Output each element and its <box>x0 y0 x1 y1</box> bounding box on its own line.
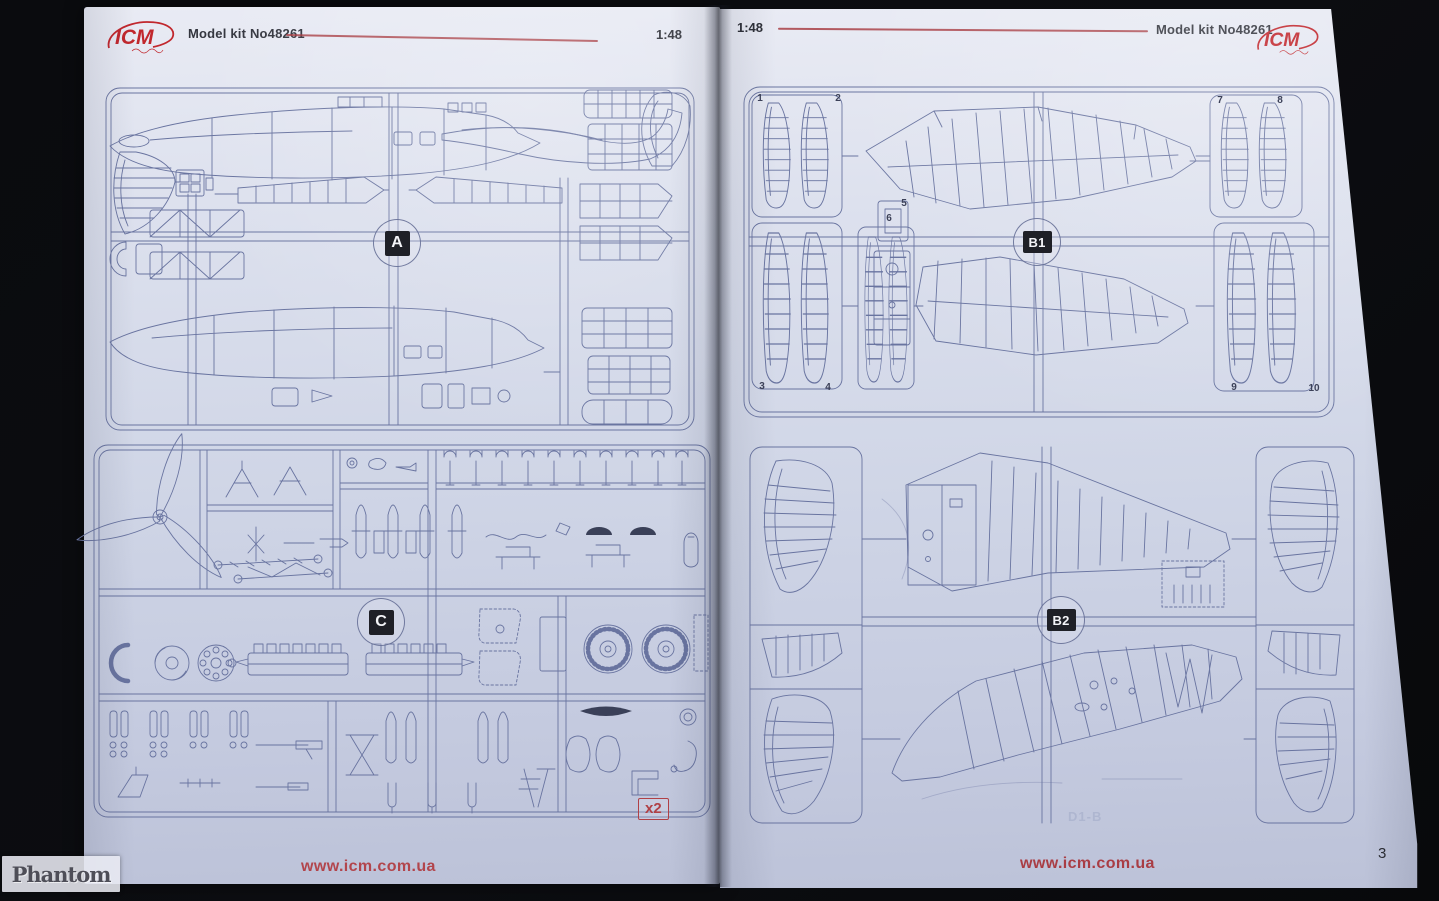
scale-label: 1:48 <box>737 20 763 35</box>
photo-of-instruction-sheet: ICM Model kit No48261 1:48 <box>0 0 1439 901</box>
footer-url: www.icm.com.ua <box>301 858 436 876</box>
header-rule <box>286 34 598 42</box>
scale-label: 1:48 <box>656 27 682 42</box>
frame-number: 1 <box>752 93 768 104</box>
icm-logo-tagline <box>132 49 163 53</box>
page-number: 3 <box>1378 845 1386 862</box>
header-rule <box>778 28 1148 33</box>
sprue-a-badge: A <box>373 219 421 267</box>
icm-logo: ICM <box>102 17 178 57</box>
watermark-text: Phantom <box>12 862 111 887</box>
left-page: ICM Model kit No48261 1:48 <box>84 7 720 884</box>
photo-watermark: Phantom <box>2 856 120 892</box>
sprue-c-badge: C <box>357 598 405 646</box>
frame-number: 9 <box>1226 382 1242 393</box>
frame-number: 3 <box>754 381 770 392</box>
brand-text: ICM <box>1264 29 1300 51</box>
sprue-a-label: A <box>385 231 410 256</box>
footer-url: www.icm.com.ua <box>1020 855 1155 873</box>
frame-number: 6 <box>881 213 897 224</box>
showthrough-text: D1-B <box>1068 809 1102 824</box>
frame-number: 7 <box>1212 95 1228 106</box>
sprue-b1-label: B1 <box>1023 231 1052 253</box>
right-page: 1:48 Model kit No48261 ICM <box>720 9 1420 888</box>
sprue-b2-badge: B2 <box>1037 596 1085 644</box>
frame-number: 4 <box>820 382 836 393</box>
frame-number: 8 <box>1272 95 1288 106</box>
quantity-badge: x2 <box>638 798 669 820</box>
sprue-b1-badge: B1 <box>1013 218 1061 266</box>
frame-number: 5 <box>896 198 912 209</box>
sprue-b2-label: B2 <box>1047 609 1076 631</box>
frame-number: 10 <box>1306 383 1322 394</box>
sprue-c-label: C <box>369 610 394 635</box>
brand-text: ICM <box>115 26 154 49</box>
frame-number: 2 <box>830 93 846 104</box>
